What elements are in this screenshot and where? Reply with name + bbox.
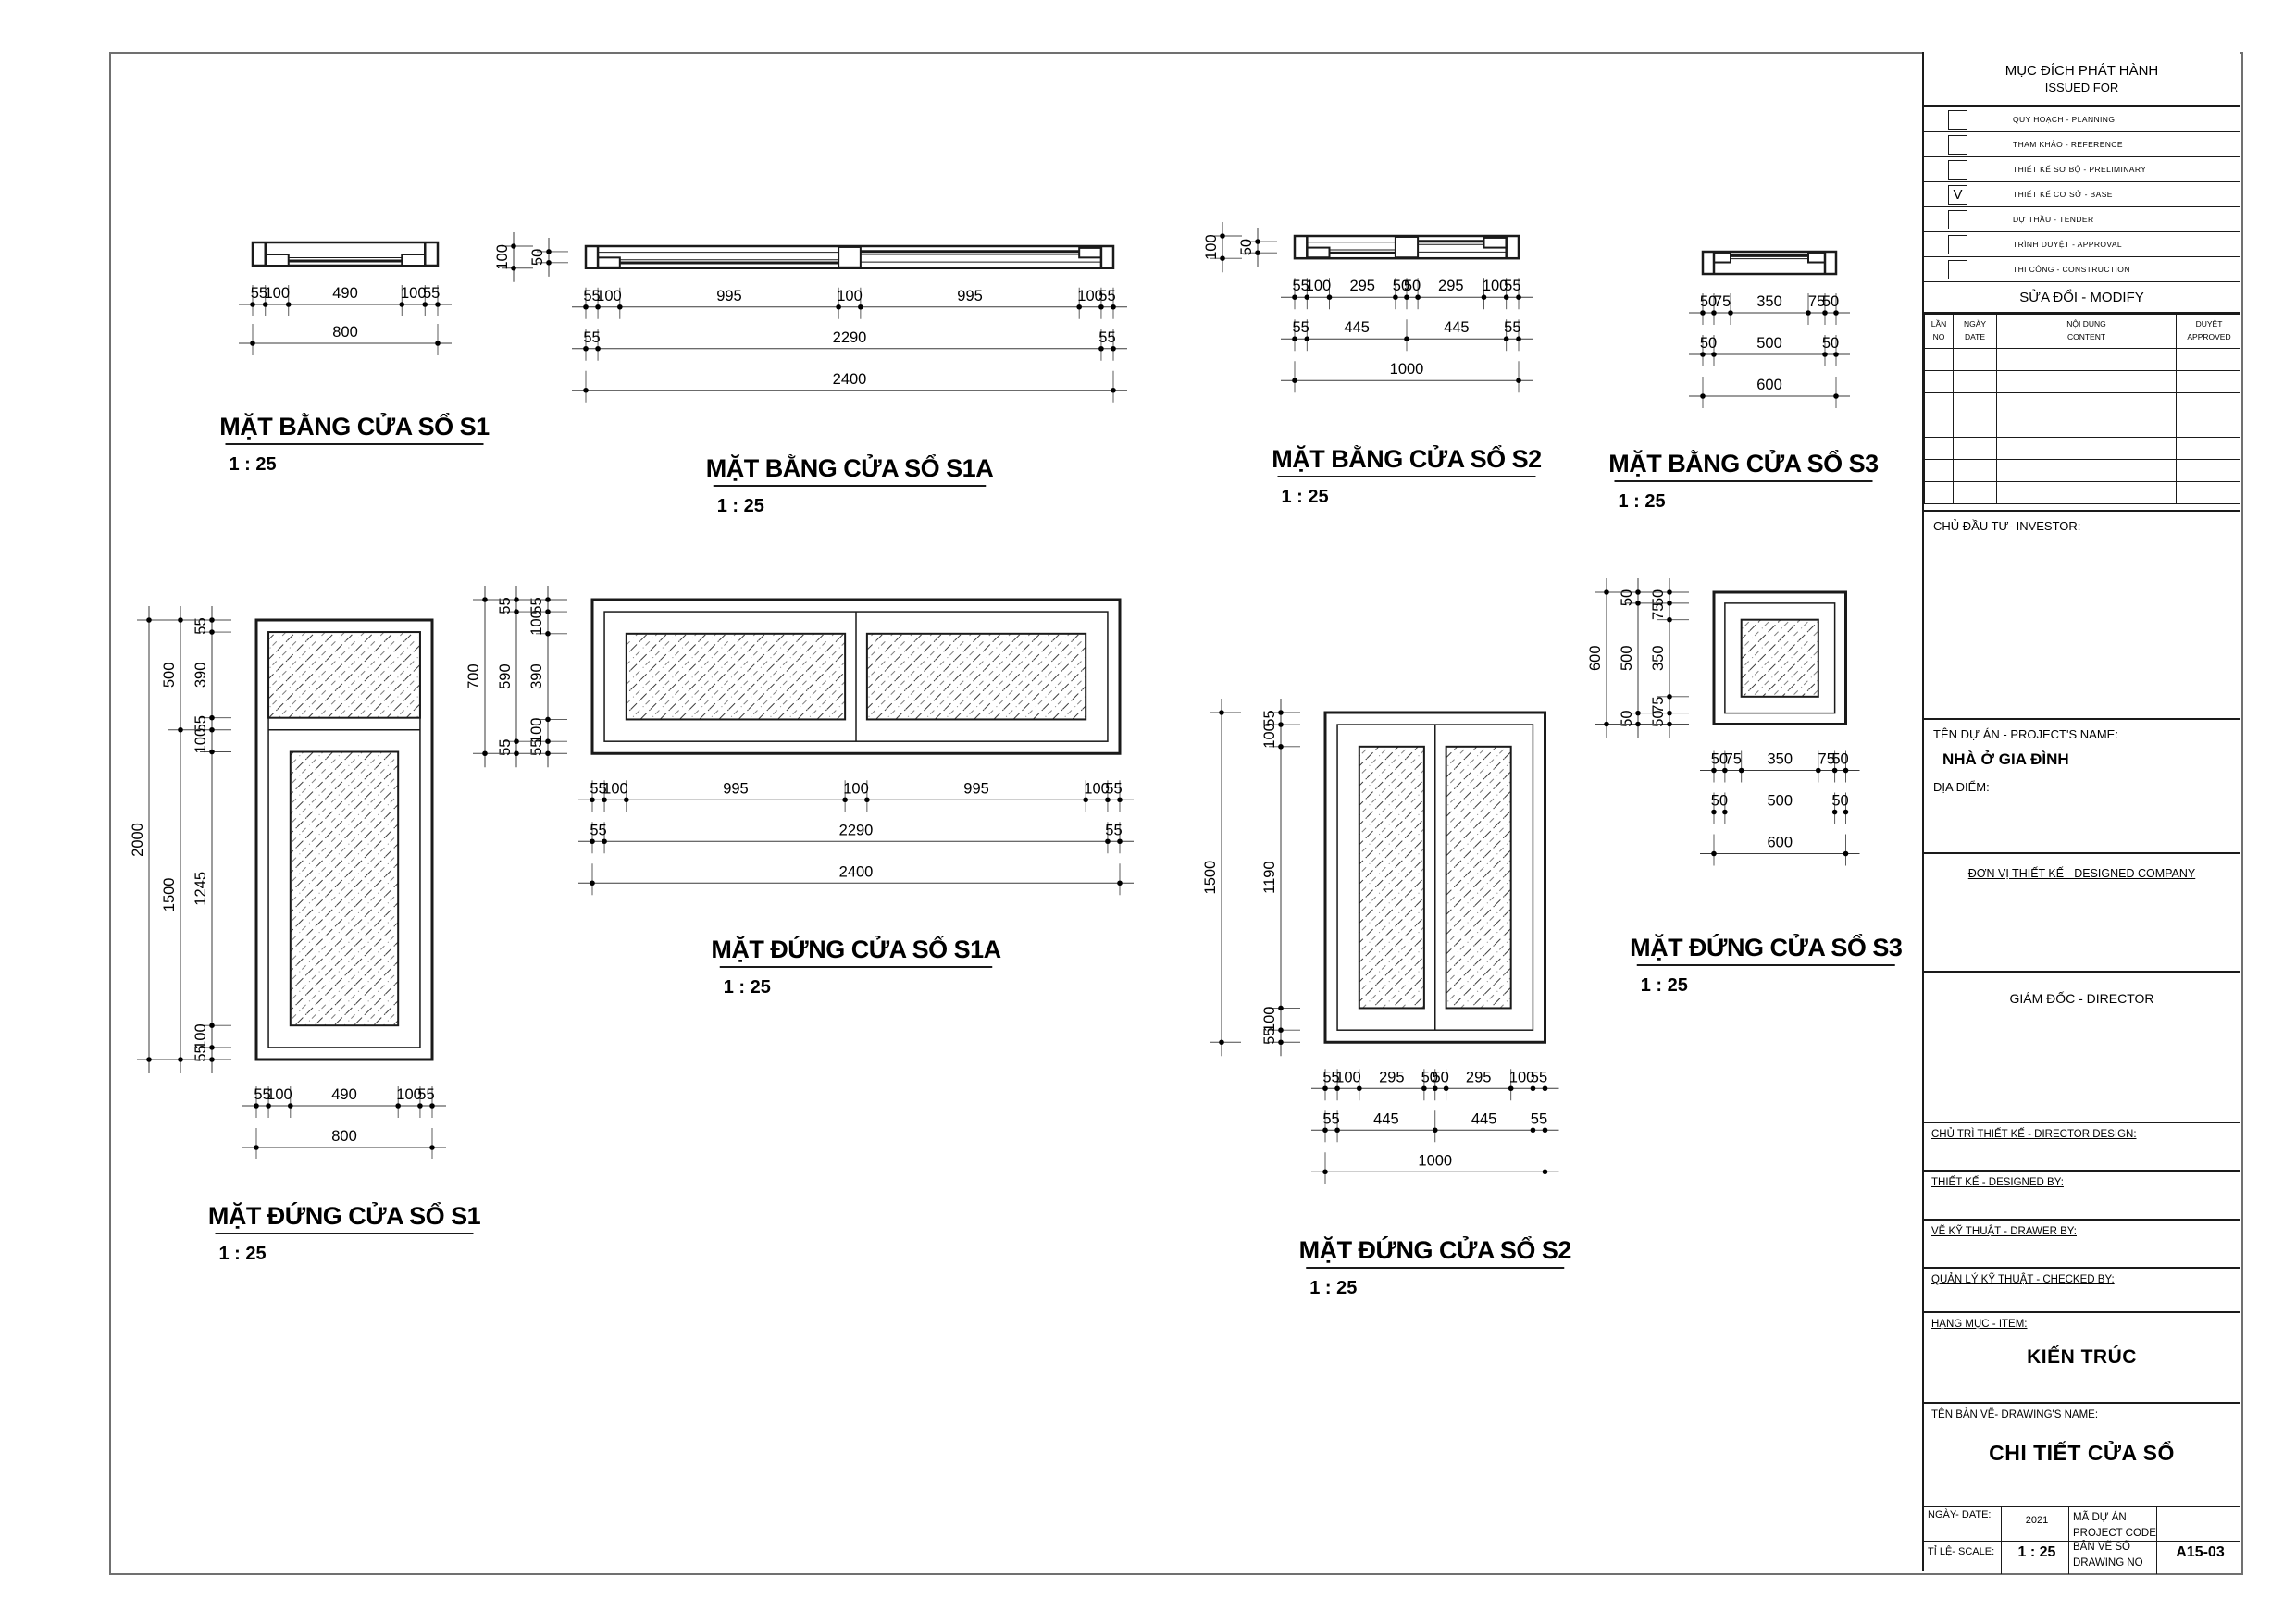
- dim-tick: [395, 1103, 401, 1109]
- dimension-label: 55: [1105, 780, 1122, 797]
- dim-tick: [1711, 810, 1717, 815]
- dim-tick: [1843, 768, 1849, 774]
- drawing-scale: 1 : 25: [219, 1244, 267, 1264]
- dimension-label: 995: [716, 288, 742, 304]
- dim-tick: [617, 304, 623, 310]
- dimension-label: 55: [1504, 278, 1520, 294]
- dim-tick: [178, 727, 183, 733]
- dimension-label: 55: [1098, 329, 1115, 346]
- modify-empty-cell: [1997, 349, 2177, 371]
- sig-row-designed-by: THIẾT KẾ - DESIGNED BY:: [1924, 1172, 2240, 1221]
- dimension-label: 55: [423, 285, 440, 302]
- drawing-scale: 1 : 25: [1309, 1278, 1357, 1298]
- dim-tick: [1667, 601, 1672, 606]
- modify-empty-cell: [1925, 415, 1954, 438]
- dimension-label: 100: [837, 288, 863, 304]
- frame-rect: [1396, 237, 1418, 257]
- dim-tick: [1117, 838, 1123, 844]
- dim-tick: [514, 597, 519, 602]
- sig-row-director-design: CHỦ TRÌ THIẾT KẾ - DIRECTOR DESIGN:: [1924, 1123, 2240, 1172]
- glass-panel: [1359, 747, 1424, 1009]
- dim-tick: [1543, 1169, 1548, 1174]
- issued-for-label: THI CÔNG - CONSTRUCTION: [2013, 265, 2130, 274]
- dim-tick: [417, 1103, 423, 1109]
- dim-tick: [858, 304, 863, 310]
- sig-label: THIẾT KẾ - DESIGNED BY:: [1924, 1172, 2240, 1188]
- project-section: TÊN DỰ ÁN - PROJECT'S NAME: NHÀ Ở GIA ĐÌ…: [1924, 720, 2240, 854]
- checkbox: [1948, 135, 1967, 155]
- dimension-label: 55: [1292, 319, 1309, 336]
- dimension-label: 800: [331, 1128, 357, 1145]
- dim-tick: [1322, 1127, 1328, 1133]
- frame-rect: [1808, 253, 1825, 263]
- elev-s1: 5510049010055800553905510012451005550015…: [130, 606, 481, 1264]
- dim-tick: [435, 341, 441, 346]
- meta-grid: NGÀY- DATE: 2021 MÃ DỰ ÁNPROJECT CODE TỈ…: [1924, 1507, 2240, 1574]
- item-section: HẠNG MỤC - ITEM: KIẾN TRÚC: [1924, 1313, 2240, 1404]
- dim-tick: [842, 797, 848, 802]
- dim-tick: [1722, 810, 1728, 815]
- checkbox: [1948, 260, 1967, 279]
- dimension-label: 50: [1238, 239, 1255, 255]
- dim-tick: [1482, 294, 1487, 300]
- dim-tick: [1404, 294, 1409, 300]
- dimension-label: 75: [1650, 603, 1667, 620]
- modify-empty-cell: [1997, 482, 2177, 504]
- drawing-title: MẶT ĐỨNG CỬA SỔ S2: [1299, 1234, 1571, 1264]
- dim-tick: [1604, 722, 1609, 727]
- dim-tick: [545, 597, 551, 602]
- dim-tick: [1711, 768, 1717, 774]
- dim-tick: [595, 304, 601, 310]
- dimension-label: 100: [192, 728, 209, 754]
- dim-tick: [1415, 294, 1421, 300]
- dim-tick: [1105, 838, 1111, 844]
- issued-for-row: THAM KHẢO - REFERENCE: [1924, 132, 2240, 157]
- dimension-label: 100: [1203, 234, 1220, 260]
- dim-tick: [399, 302, 404, 307]
- dim-tick: [1843, 810, 1849, 815]
- drawing-name-value: CHI TIẾT CỬA SỔ: [1924, 1420, 2240, 1466]
- dim-tick: [1543, 1127, 1548, 1133]
- dim-tick: [1098, 346, 1104, 352]
- frame-rect: [266, 254, 289, 266]
- dimension-label: 1000: [1418, 1152, 1452, 1169]
- dim-tick: [422, 302, 428, 307]
- drawings-layer: 5510049010055800MẶT BẰNG CỬA SỔ S11 : 25…: [130, 222, 1903, 1298]
- plan-s1: 5510049010055800MẶT BẰNG CỬA SỔ S11 : 25: [219, 242, 490, 475]
- code-label-vi: MÃ DỰ ÁN: [2073, 1512, 2127, 1523]
- glass-panel: [268, 632, 420, 718]
- dimension-label: 500: [1767, 793, 1793, 810]
- dim-tick: [1635, 601, 1641, 606]
- dim-tick: [178, 1057, 183, 1062]
- plan-s1a: 551009951009951005555229055240010050MẶT …: [494, 232, 1127, 516]
- drawing-scale: 1 : 25: [717, 496, 764, 516]
- company-section: ĐƠN VỊ THIẾT KẾ - DESIGNED COMPANY: [1924, 854, 2240, 973]
- dim-tick: [1433, 1127, 1438, 1133]
- dim-tick: [286, 302, 292, 307]
- dim-tick: [514, 750, 519, 756]
- frame-rect: [598, 257, 620, 267]
- dimension-label: 800: [332, 324, 358, 341]
- modify-empty-cell: [1925, 371, 1954, 393]
- dimension-label: 50: [1650, 710, 1667, 726]
- dim-tick: [1700, 310, 1706, 316]
- investor-label: CHỦ ĐẦU TƯ- INVESTOR:: [1924, 512, 2240, 533]
- issued-for-label: TRÌNH DUYỆT - APPROVAL: [2013, 240, 2122, 249]
- dimension-label: 490: [331, 1086, 357, 1103]
- modify-empty-cell: [2177, 460, 2240, 482]
- location-label: ĐỊA ĐIỂM:: [1924, 769, 2240, 794]
- dim-tick: [545, 609, 551, 614]
- dim-tick: [595, 346, 601, 352]
- dimension-label: 75: [1725, 751, 1742, 768]
- modify-empty-cell: [1954, 371, 1997, 393]
- dimension-label: 350: [1767, 751, 1793, 768]
- director-section: GIÁM ĐỐC - DIRECTOR: [1924, 973, 2240, 1123]
- dim-tick: [1508, 1085, 1514, 1091]
- dim-tick: [1711, 310, 1717, 316]
- title-block: MỤC ĐÍCH PHÁT HÀNH ISSUED FOR QUY HOẠCH …: [1922, 52, 2240, 1571]
- drawing-title: MẶT BẰNG CỬA SỔ S1A: [706, 452, 993, 482]
- elev-s1a: 5510099510099510055552290552400551003901…: [465, 586, 1134, 998]
- item-value: KIẾN TRÚC: [1924, 1330, 2240, 1369]
- dim-tick: [1711, 851, 1717, 857]
- dimension-label: 55: [583, 329, 600, 346]
- dim-tick: [545, 750, 551, 756]
- dim-tick: [1516, 378, 1521, 383]
- dim-tick: [209, 727, 215, 733]
- dim-tick: [429, 1103, 435, 1109]
- dim-tick: [1504, 294, 1509, 300]
- modify-col-header: DUYỆTAPPROVED: [2177, 315, 2240, 349]
- cad-sheet: { "title_block": { "issued_for": { "titl…: [0, 0, 2296, 1624]
- dim-tick: [1357, 1085, 1362, 1091]
- issued-for-row: DỰ THẦU - TENDER: [1924, 207, 2240, 232]
- dim-tick: [429, 1145, 435, 1150]
- dim-tick: [1667, 589, 1672, 595]
- sig-label: CHỦ TRÌ THIẾT KẾ - DIRECTOR DESIGN:: [1924, 1123, 2240, 1140]
- dimension-label: 55: [1504, 319, 1520, 336]
- dim-tick: [1076, 304, 1082, 310]
- dim-tick: [545, 717, 551, 723]
- modify-col-header: NGÀYDATE: [1954, 315, 1997, 349]
- drawing-title: MẶT ĐỨNG CỬA SỔ S1A: [711, 934, 1000, 963]
- dim-tick: [1219, 1039, 1224, 1045]
- dimension-label: 490: [332, 285, 358, 302]
- dim-tick: [1516, 294, 1521, 300]
- dim-tick: [545, 631, 551, 637]
- dim-tick: [1832, 768, 1838, 774]
- checkbox: [1948, 210, 1967, 229]
- dim-tick: [1334, 1085, 1340, 1091]
- frame-rect: [1483, 238, 1506, 248]
- dimension-label: 1500: [1202, 861, 1219, 895]
- dim-tick: [1667, 711, 1672, 716]
- dimension-label: 50: [1831, 751, 1848, 768]
- dim-tick: [514, 609, 519, 614]
- glass-panel: [867, 634, 1086, 720]
- dimension-label: 100: [494, 244, 511, 270]
- issued-for-row: QUY HOẠCH - PLANNING: [1924, 107, 2240, 132]
- dim-tick: [1433, 1085, 1438, 1091]
- modify-empty-cell: [1954, 393, 1997, 415]
- drawing-name-label: TÊN BẢN VẼ- DRAWING'S NAME:: [1924, 1404, 2240, 1420]
- dim-tick: [836, 304, 841, 310]
- dim-tick: [1543, 1085, 1548, 1091]
- dimension-label: 995: [957, 288, 983, 304]
- glass-panel: [291, 752, 398, 1026]
- dim-tick: [1635, 722, 1641, 727]
- dimension-label: 600: [1587, 645, 1604, 671]
- modify-empty-cell: [1997, 438, 2177, 460]
- dim-tick: [1806, 310, 1811, 316]
- modify-empty-cell: [1954, 460, 1997, 482]
- issued-for-label: QUY HOẠCH - PLANNING: [2013, 115, 2115, 124]
- dim-tick: [602, 838, 607, 844]
- dim-tick: [1635, 589, 1641, 595]
- dimension-label: 500: [1756, 335, 1782, 352]
- scale-label: TỈ LỆ- SCALE:: [1924, 1535, 2002, 1574]
- dimension-label: 100: [602, 780, 628, 797]
- dim-tick: [254, 1145, 259, 1150]
- dim-tick: [1305, 294, 1310, 300]
- modify-header: SỬA ĐỔI - MODIFY: [1924, 282, 2240, 314]
- drawing-name-section: TÊN BẢN VẼ- DRAWING'S NAME: CHI TIẾT CỬA…: [1924, 1404, 2240, 1507]
- frame-rect: [1714, 253, 1731, 263]
- no-label: BẢN VẼ SỐDRAWING NO: [2069, 1535, 2157, 1574]
- dimension-label: 100: [596, 288, 622, 304]
- modify-empty-cell: [1954, 482, 1997, 504]
- dim-tick: [1832, 810, 1838, 815]
- dim-tick: [1278, 1039, 1284, 1045]
- modify-empty-cell: [1925, 349, 1954, 371]
- no-label-en: DRAWING NO: [2073, 1557, 2143, 1568]
- dim-tick: [1117, 880, 1123, 886]
- dim-tick: [624, 797, 629, 802]
- dim-tick: [546, 249, 552, 254]
- dim-tick: [146, 617, 152, 623]
- dimension-label: 55: [1531, 1069, 1547, 1085]
- dimension-label: 100: [843, 780, 869, 797]
- modify-empty-cell: [1997, 460, 2177, 482]
- dimension-label: 445: [1471, 1110, 1497, 1127]
- dim-tick: [250, 341, 255, 346]
- dimension-label: 50: [1822, 335, 1839, 352]
- dimension-label: 50: [1822, 293, 1839, 310]
- drawing-scale: 1 : 25: [1619, 491, 1666, 512]
- dim-tick: [1833, 352, 1839, 357]
- dim-tick: [1117, 797, 1123, 802]
- dim-tick: [209, 629, 215, 635]
- dimension-label: 500: [1619, 645, 1635, 671]
- dim-tick: [1278, 1027, 1284, 1033]
- dimension-label: 2400: [833, 371, 867, 388]
- dim-tick: [1728, 310, 1733, 316]
- dim-tick: [1278, 710, 1284, 715]
- dim-tick: [590, 880, 595, 886]
- dimension-label: 995: [963, 780, 989, 797]
- issued-for-list: QUY HOẠCH - PLANNINGTHAM KHẢO - REFERENC…: [1924, 107, 2240, 282]
- sig-row-checked-by: QUẢN LÝ KỸ THUẬT - CHECKED BY:: [1924, 1269, 2240, 1313]
- dim-tick: [1255, 250, 1260, 255]
- modify-empty-cell: [2177, 393, 2240, 415]
- dimension-label: 2000: [130, 823, 146, 857]
- drawing-title: MẶT BẰNG CỬA SỔ S3: [1608, 448, 1879, 477]
- dimension-label: 445: [1344, 319, 1370, 336]
- drawing-title: MẶT ĐỨNG CỬA SỔ S3: [1630, 932, 1903, 961]
- dim-tick: [178, 617, 183, 623]
- issued-for-row: VTHIẾT KẾ CƠ SỞ - BASE: [1924, 182, 2240, 207]
- dim-tick: [209, 617, 215, 623]
- modify-empty-cell: [2177, 438, 2240, 460]
- dim-tick: [1444, 1085, 1449, 1091]
- dim-tick: [266, 1103, 271, 1109]
- dim-tick: [583, 388, 589, 393]
- item-label: HẠNG MỤC - ITEM:: [1924, 1313, 2240, 1330]
- dimension-label: 50: [529, 249, 546, 266]
- dimension-label: 600: [1756, 377, 1782, 393]
- dim-tick: [546, 260, 552, 266]
- project-name: NHÀ Ở GIA ĐÌNH: [1924, 741, 2240, 769]
- dim-tick: [1667, 694, 1672, 700]
- issued-for-row: THI CÔNG - CONSTRUCTION: [1924, 257, 2240, 282]
- drawing-title: MẶT ĐỨNG CỬA SỔ S1: [208, 1200, 481, 1230]
- drawing-title: MẶT BẰNG CỬA SỔ S2: [1272, 443, 1541, 473]
- dim-tick: [1816, 768, 1821, 774]
- dimension-label: 445: [1373, 1110, 1399, 1127]
- dim-tick: [1393, 294, 1398, 300]
- dim-tick: [1255, 239, 1260, 244]
- glass-panel: [1742, 620, 1818, 697]
- dim-tick: [1635, 711, 1641, 716]
- modify-empty-cell: [1954, 415, 1997, 438]
- dim-tick: [583, 346, 589, 352]
- investor-section: CHỦ ĐẦU TƯ- INVESTOR:: [1924, 512, 2240, 720]
- modify-empty-cell: [2177, 371, 2240, 393]
- modify-empty-cell: [2177, 415, 2240, 438]
- issued-for-row: TRÌNH DUYỆT - APPROVAL: [1924, 232, 2240, 257]
- dim-tick: [288, 1103, 293, 1109]
- dim-tick: [590, 838, 595, 844]
- dim-tick: [1843, 851, 1849, 857]
- dim-tick: [1278, 744, 1284, 750]
- dim-tick: [1098, 304, 1104, 310]
- dim-tick: [1111, 388, 1116, 393]
- dim-tick: [1278, 1006, 1284, 1011]
- dim-tick: [1278, 722, 1284, 727]
- dim-tick: [1516, 336, 1521, 341]
- dimension-label: 100: [1335, 1069, 1361, 1085]
- dim-tick: [1327, 294, 1333, 300]
- dimension-label: 100: [1261, 723, 1278, 749]
- dimension-label: 445: [1444, 319, 1470, 336]
- dimension-label: 55: [1322, 1110, 1339, 1127]
- issued-for-header: MỤC ĐÍCH PHÁT HÀNH ISSUED FOR: [1924, 52, 2240, 107]
- dimension-label: 55: [1105, 822, 1122, 838]
- dimension-label: 295: [1379, 1069, 1405, 1085]
- elev-s2: 5510029550502951005555445445551000551001…: [1202, 699, 1571, 1298]
- issued-for-label: THAM KHẢO - REFERENCE: [2013, 140, 2123, 149]
- issued-for-label: DỰ THẦU - TENDER: [2013, 215, 2094, 224]
- dimension-label: 55: [1531, 1110, 1547, 1127]
- dimension-label: 390: [192, 663, 209, 688]
- modify-empty-cell: [1954, 438, 1997, 460]
- dimension-label: 100: [1306, 278, 1332, 294]
- drawing-scale: 1 : 25: [724, 977, 771, 998]
- modify-empty-cell: [1954, 349, 1997, 371]
- plan-s3: 507535075505050050600MẶT BẰNG CỬA SỔ S31…: [1608, 252, 1879, 512]
- dim-tick: [1822, 352, 1828, 357]
- dim-tick: [482, 750, 488, 756]
- dimension-label: 100: [264, 285, 290, 302]
- dimension-label: 2290: [839, 822, 874, 838]
- dim-tick: [482, 597, 488, 602]
- issued-for-label: THIẾT KẾ SƠ BỘ - PRELIMINARY: [2013, 165, 2146, 174]
- dim-tick: [602, 797, 607, 802]
- checkbox: [1948, 160, 1967, 180]
- dimension-label: 100: [267, 1086, 292, 1103]
- checkbox: [1948, 110, 1967, 130]
- modify-empty-cell: [2177, 482, 2240, 504]
- dimension-label: 50: [1619, 589, 1635, 606]
- dimension-label: 295: [1466, 1069, 1492, 1085]
- glass-panel: [627, 634, 845, 720]
- modify-table-wrap: LẦNNONGÀYDATENỘI DUNGCONTENTDUYỆTAPPROVE…: [1924, 314, 2240, 512]
- dim-tick: [1305, 336, 1310, 341]
- dimension-label: 50: [1619, 710, 1635, 726]
- dimension-label: 295: [1438, 278, 1464, 294]
- modify-empty-cell: [1925, 482, 1954, 504]
- dim-tick: [263, 302, 268, 307]
- checkbox: [1948, 235, 1967, 254]
- dim-tick: [1504, 336, 1509, 341]
- dim-tick: [1822, 310, 1828, 316]
- dimension-label: 50: [1711, 793, 1728, 810]
- dim-tick: [1220, 233, 1225, 239]
- dimension-label: 2290: [833, 329, 867, 346]
- modify-empty-cell: [1925, 393, 1954, 415]
- dim-tick: [1739, 768, 1744, 774]
- dim-tick: [1292, 294, 1297, 300]
- dimension-label: 350: [1756, 293, 1782, 310]
- dimension-label: 1245: [192, 872, 209, 906]
- dimension-label: 1000: [1390, 361, 1424, 378]
- dim-tick: [1292, 378, 1297, 383]
- dim-tick: [435, 302, 441, 307]
- dim-tick: [514, 738, 519, 744]
- glass-panel: [1446, 747, 1511, 1009]
- frame-rect: [1307, 248, 1329, 258]
- dim-tick: [1667, 722, 1672, 727]
- dim-tick: [1404, 336, 1409, 341]
- dimension-label: 50: [1433, 1069, 1449, 1085]
- issued-for-title-en: ISSUED FOR: [1924, 79, 2240, 94]
- no-label-vi: BẢN VẼ SỐ: [2073, 1542, 2130, 1553]
- dim-tick: [583, 304, 589, 310]
- dimension-label: 55: [417, 1086, 434, 1103]
- modify-empty-cell: [1997, 415, 2177, 438]
- dimension-label: 1190: [1261, 861, 1278, 893]
- dim-tick: [864, 797, 870, 802]
- dimension-label: 50: [1404, 278, 1421, 294]
- dim-tick: [1700, 393, 1706, 399]
- modify-empty-cell: [1997, 393, 2177, 415]
- dim-tick: [1722, 768, 1728, 774]
- dim-tick: [511, 266, 516, 271]
- dimension-label: 100: [528, 610, 545, 636]
